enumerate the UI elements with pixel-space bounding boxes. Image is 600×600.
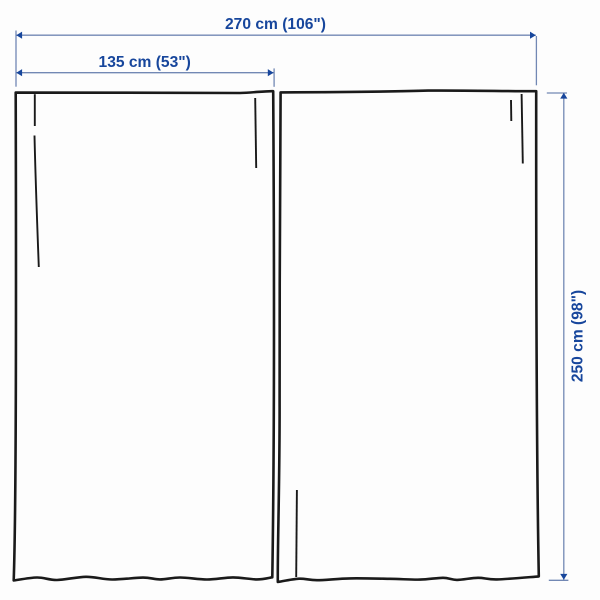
svg-text:135 cm (53"): 135 cm (53") — [99, 54, 191, 71]
svg-text:250 cm (98"): 250 cm (98") — [570, 290, 587, 382]
svg-text:270 cm (106"): 270 cm (106") — [225, 16, 326, 33]
